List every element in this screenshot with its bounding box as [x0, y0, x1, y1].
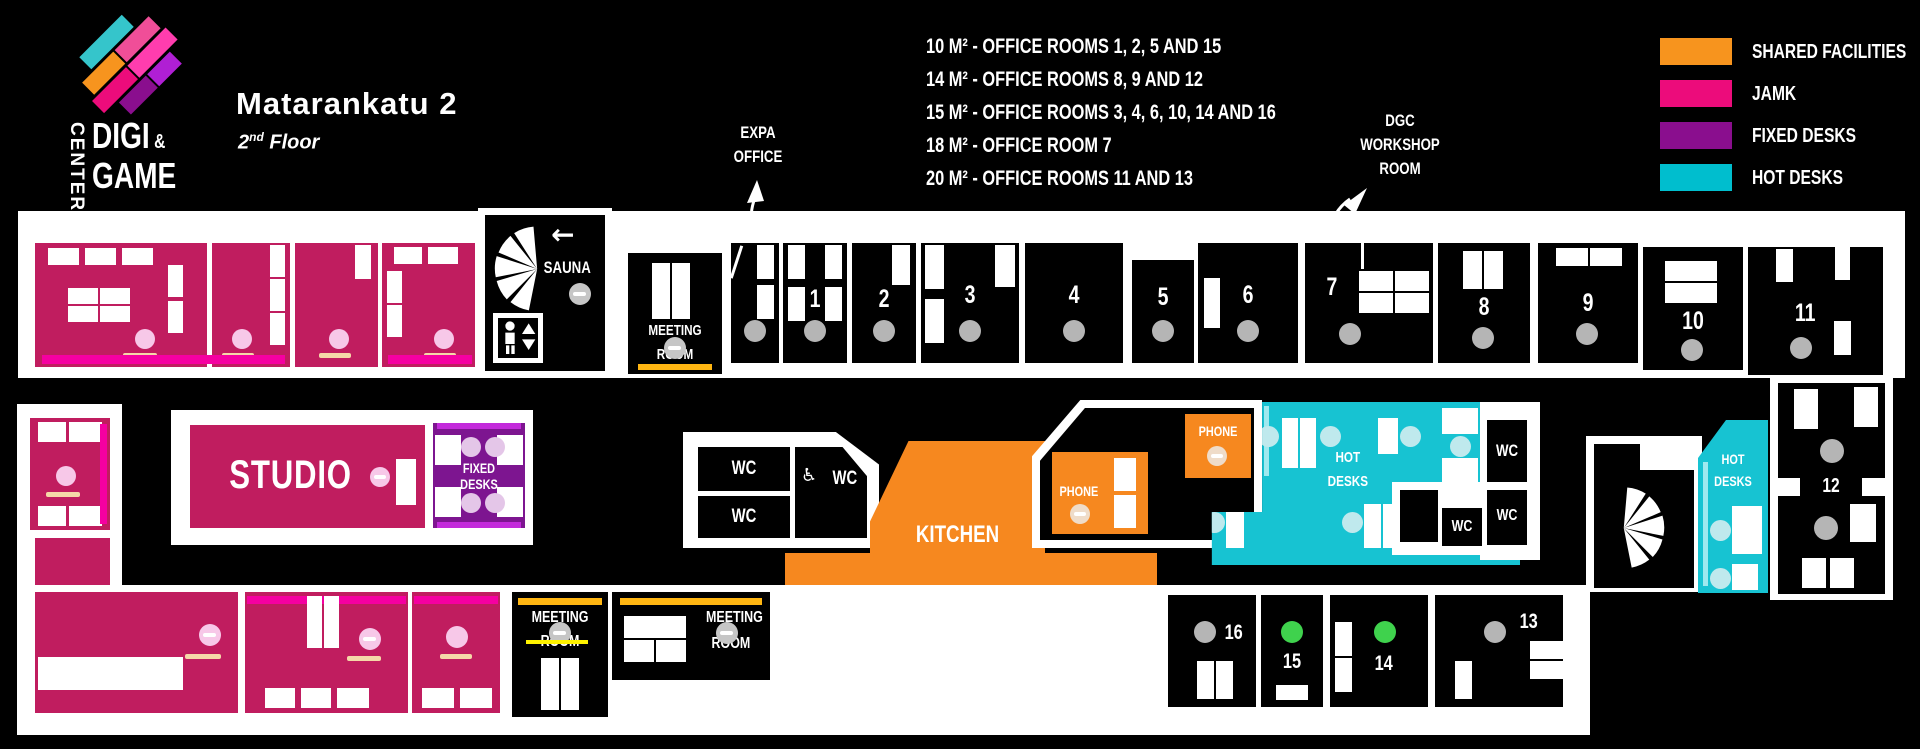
kitchen-label: KITCHEN [889, 523, 1026, 547]
door-knob-icon [370, 467, 390, 487]
sauna-label: SAUNA [544, 259, 591, 276]
expa-office-room [731, 243, 779, 363]
office-room-8: 8 [1438, 243, 1530, 363]
wc-room: WC [1442, 508, 1482, 546]
legend-swatch [1660, 122, 1732, 149]
chair-dot [1814, 516, 1838, 540]
legend-label: FIXED DESKS [1752, 126, 1856, 146]
stairs-fan-icon [489, 223, 543, 315]
office-room-4: 4 [1025, 243, 1123, 363]
door-knob-icon [716, 622, 738, 644]
chair-dot [485, 437, 505, 457]
legend-label: JAMK [1752, 84, 1796, 104]
wc-room: WC [1487, 420, 1527, 482]
chair-dot [461, 493, 481, 513]
jamk-room [30, 418, 110, 530]
chair-dot [232, 329, 252, 349]
phone-label: PHONE [1192, 424, 1243, 438]
office-room-13: 13 [1435, 595, 1563, 707]
chair-dot [1820, 439, 1844, 463]
office-room-7: 7 [1305, 243, 1433, 363]
door-knob-icon [359, 628, 381, 650]
jamk-room [35, 243, 207, 367]
phone-booth: PHONE [1052, 452, 1148, 534]
chair-dot [135, 329, 155, 349]
storage-room [1400, 490, 1438, 542]
office-room-14: 14 [1330, 595, 1428, 707]
jamk-room [245, 592, 408, 713]
elevator-icon [493, 313, 543, 363]
status-dot [1194, 621, 1216, 643]
jamk-room [382, 243, 475, 367]
chair-dot [1400, 426, 1421, 447]
chair-dot [1790, 337, 1812, 359]
fixed-desks-room: FIXED DESKS [433, 423, 525, 528]
office-room-9: 9 [1538, 243, 1638, 363]
wc-room: WC [698, 447, 790, 491]
office-room-16: 16 [1168, 595, 1256, 707]
office-room-6: 6 [1198, 243, 1298, 363]
office-room-12-bottom [1778, 496, 1885, 594]
chair-dot [1450, 436, 1471, 457]
hot-desks-strip: HOT DESKS [1698, 420, 1768, 593]
phone-label: PHONE [1059, 484, 1098, 498]
kitchen-area: KITCHEN [870, 441, 1045, 556]
digi-game-logo-icon [70, 8, 206, 122]
door-knob-icon [1070, 504, 1090, 524]
room-size-info: 10 M² - OFFICE ROOMS 1, 2, 5 AND 15 14 M… [926, 36, 1375, 189]
floor-plan: CENTER DIGI & GAME Matarankatu 2 2nd Flo… [0, 0, 1920, 749]
chair-dot [56, 466, 76, 486]
door-knob-icon [664, 337, 686, 359]
page-subtitle: 2nd Floor [238, 130, 319, 155]
chair-dot [1710, 568, 1731, 589]
jamk-room [412, 592, 500, 713]
studio-label: STUDIO [229, 455, 352, 495]
chair-dot [1320, 426, 1341, 447]
legend-label: HOT DESKS [1752, 168, 1843, 188]
office-room-10: 10 [1643, 247, 1743, 370]
status-dot [1484, 621, 1506, 643]
office-room-3: 3 [921, 243, 1019, 363]
room-12-label-bg: 12 [1800, 474, 1862, 496]
chair-dot [1472, 327, 1494, 349]
chair-dot [434, 329, 454, 349]
status-dot-available [1374, 621, 1396, 643]
door-knob-icon [199, 624, 221, 646]
phone-booth: PHONE [1185, 414, 1251, 478]
chair-dot [1339, 323, 1361, 345]
chair-dot [804, 320, 826, 342]
logo-center-text: CENTER [67, 122, 86, 200]
chair-dot [446, 626, 468, 648]
office-room-2: 2 [852, 243, 916, 363]
chair-dot [329, 329, 349, 349]
office-room-12-top [1778, 383, 1885, 478]
chair-dot [959, 320, 981, 342]
chair-dot [873, 320, 895, 342]
chair-dot [1063, 320, 1085, 342]
chair-dot [485, 493, 505, 513]
jamk-room [212, 243, 290, 367]
legend-swatch [1660, 164, 1732, 191]
chair-dot [1710, 520, 1731, 541]
jamk-room [35, 538, 110, 592]
door-knob-icon [569, 283, 591, 305]
stairs-room [1594, 470, 1694, 588]
meeting-room-top: MEETING ROOM [628, 253, 722, 374]
legend-swatch [1660, 80, 1732, 107]
chair-dot [1342, 512, 1363, 533]
logo-wordmark: DIGI & GAME [92, 118, 200, 194]
chair-dot [1576, 323, 1598, 345]
legend-label: SHARED FACILITIES [1752, 42, 1906, 62]
wc-room: WC [698, 496, 790, 538]
sauna-block: ← SAUNA [478, 208, 612, 378]
office-room-11: 11 [1748, 247, 1883, 375]
page-title: Matarankatu 2 [236, 88, 457, 119]
chair-dot [1237, 320, 1259, 342]
office-room-15: 15 [1261, 595, 1323, 707]
office-room-1: 1 [783, 243, 847, 363]
studio-room: STUDIO [190, 425, 425, 528]
wheelchair-icon: ♿ [801, 467, 817, 485]
jamk-room-l [35, 592, 238, 713]
chair-dot [1152, 320, 1174, 342]
meeting-room-bottom-1: MEETING ROOM [512, 592, 608, 717]
stairs-fan-icon [1620, 484, 1668, 572]
wc-room: WC [1487, 490, 1527, 545]
legend-swatch [1660, 38, 1732, 65]
meeting-room-bottom-2: MEETING ROOM [612, 592, 770, 680]
jamk-room [295, 243, 378, 367]
chair-dot [744, 320, 766, 342]
office-room-5: 5 [1132, 260, 1194, 363]
door-knob-icon [1207, 446, 1227, 466]
status-dot-available [1281, 621, 1303, 643]
chair-dot [1681, 339, 1703, 361]
chair-dot [461, 437, 481, 457]
arrow-left-icon: ← [551, 221, 574, 249]
